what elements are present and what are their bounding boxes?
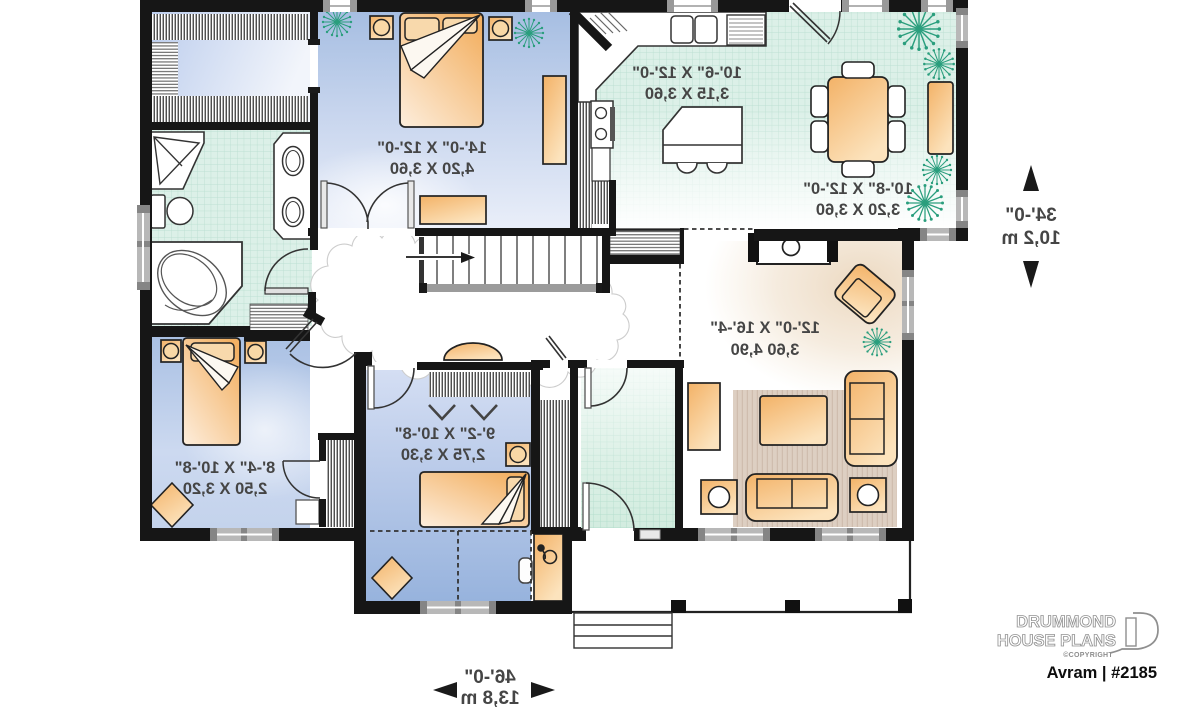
svg-text:©COPYRIGHT: ©COPYRIGHT bbox=[1063, 651, 1113, 659]
svg-text:10,2 m: 10,2 m bbox=[1001, 228, 1060, 249]
svg-text:Avram | #2185: Avram | #2185 bbox=[1047, 664, 1157, 682]
svg-text:8'-4" X 10'-8": 8'-4" X 10'-8" bbox=[175, 459, 276, 477]
svg-text:13,8 m: 13,8 m bbox=[460, 688, 519, 709]
svg-text:14'-0" X 12'-0": 14'-0" X 12'-0" bbox=[377, 139, 487, 157]
svg-text:DRUMMOND: DRUMMOND bbox=[1016, 613, 1116, 631]
svg-text:3,60 4,90: 3,60 4,90 bbox=[731, 341, 800, 359]
svg-text:2,50 X 3,20: 2,50 X 3,20 bbox=[183, 480, 267, 498]
svg-text:3,15 X 3,60: 3,15 X 3,60 bbox=[645, 85, 729, 103]
svg-text:3,20 X 3,60: 3,20 X 3,60 bbox=[816, 201, 900, 219]
svg-text:4,20 X 3,60: 4,20 X 3,60 bbox=[390, 160, 474, 178]
svg-text:34'-0": 34'-0" bbox=[1005, 205, 1057, 226]
svg-text:46'-0": 46'-0" bbox=[464, 667, 516, 688]
svg-text:10'-6" X 12'-0": 10'-6" X 12'-0" bbox=[632, 64, 742, 82]
svg-text:12'-0" X 16'-4": 12'-0" X 16'-4" bbox=[710, 319, 820, 337]
svg-text:2,75 X 3,30: 2,75 X 3,30 bbox=[401, 446, 485, 464]
svg-text:10'-8" X 12'-0": 10'-8" X 12'-0" bbox=[803, 180, 913, 198]
svg-text:HOUSE PLANS: HOUSE PLANS bbox=[997, 632, 1116, 650]
svg-text:9'-2" X 10'-8": 9'-2" X 10'-8" bbox=[395, 425, 496, 443]
